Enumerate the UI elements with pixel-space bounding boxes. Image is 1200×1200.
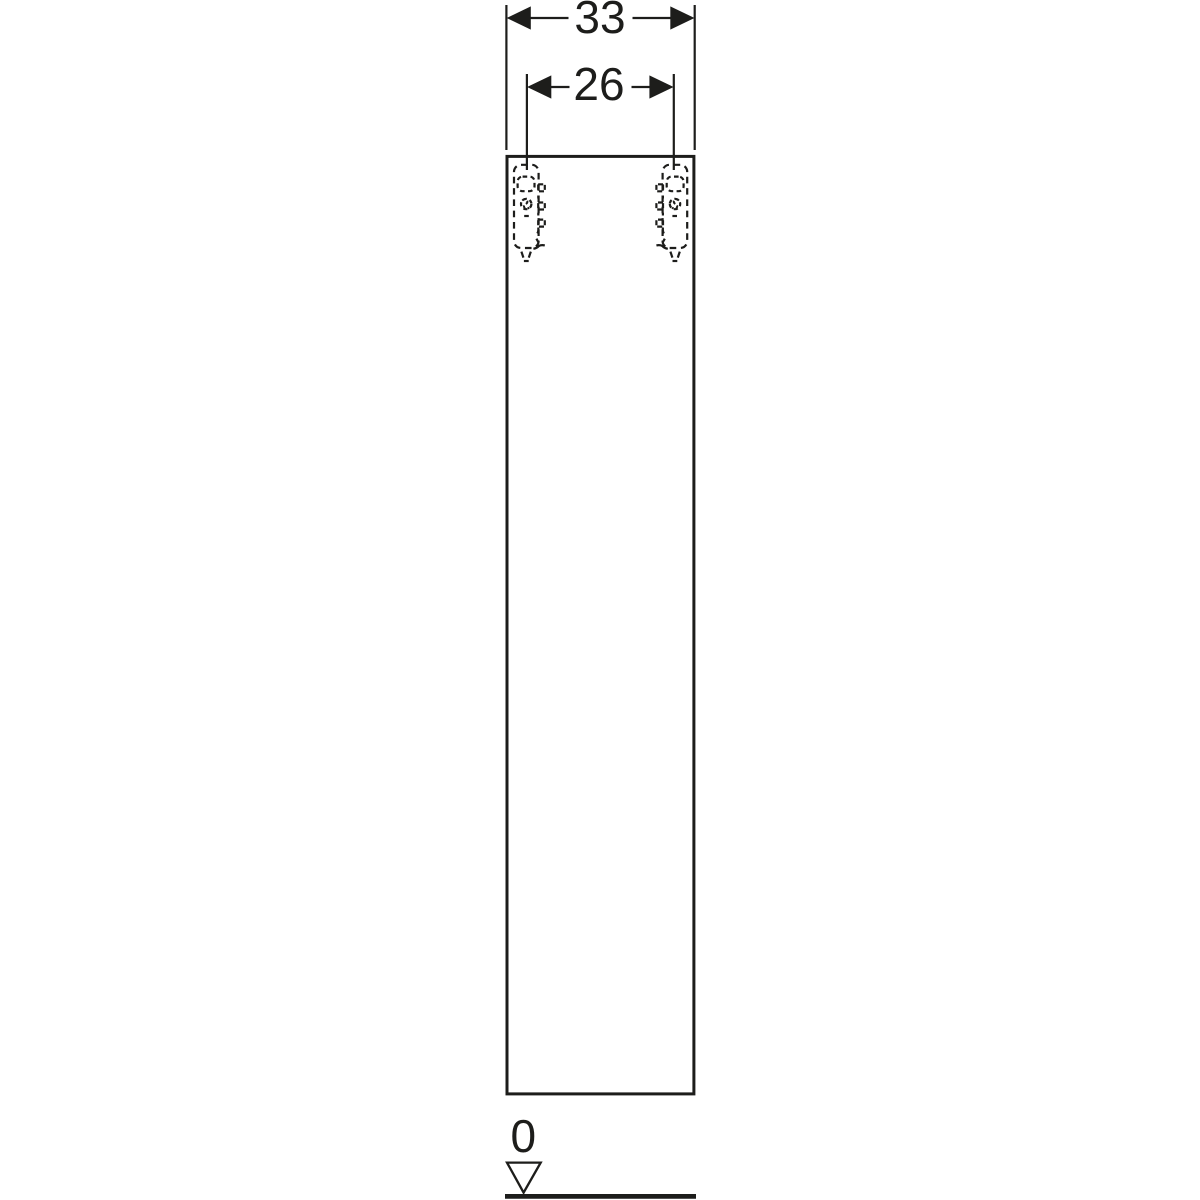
svg-text:0: 0 — [511, 1110, 537, 1162]
svg-text:33: 33 — [574, 0, 625, 43]
svg-text:26: 26 — [573, 58, 624, 110]
